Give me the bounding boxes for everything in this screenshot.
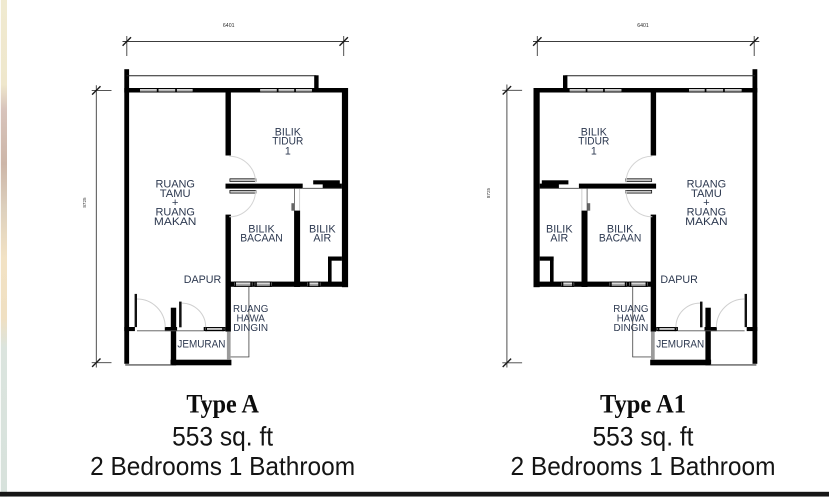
svg-text:2 Bedrooms 1 Bathroom: 2 Bedrooms 1 Bathroom <box>511 451 776 481</box>
svg-text:MAKAN: MAKAN <box>154 216 197 228</box>
svg-text:6401: 6401 <box>223 23 235 29</box>
svg-text:6401: 6401 <box>637 23 649 29</box>
svg-text:JEMURAN: JEMURAN <box>177 338 225 350</box>
svg-text:8725: 8725 <box>486 187 491 198</box>
svg-text:MAKAN: MAKAN <box>685 216 728 228</box>
svg-text:Type A: Type A <box>186 390 259 419</box>
svg-text:553 sq. ft: 553 sq. ft <box>593 422 694 452</box>
svg-text:DINGIN: DINGIN <box>614 323 649 334</box>
svg-text:1: 1 <box>285 145 291 157</box>
svg-text:AIR: AIR <box>313 233 331 245</box>
svg-text:553 sq. ft: 553 sq. ft <box>172 422 273 452</box>
svg-text:Type A1: Type A1 <box>600 390 686 419</box>
svg-text:AIR: AIR <box>550 233 568 245</box>
svg-text:JEMURAN: JEMURAN <box>656 338 704 350</box>
svg-text:DAPUR: DAPUR <box>660 274 698 286</box>
svg-text:1: 1 <box>591 145 597 157</box>
svg-text:2 Bedrooms 1 Bathroom: 2 Bedrooms 1 Bathroom <box>90 451 355 481</box>
svg-text:DINGIN: DINGIN <box>233 323 268 334</box>
svg-text:8725: 8725 <box>82 197 87 208</box>
svg-text:BACAAN: BACAAN <box>599 233 642 245</box>
svg-text:BACAAN: BACAAN <box>240 233 283 245</box>
svg-text:DAPUR: DAPUR <box>184 274 222 286</box>
